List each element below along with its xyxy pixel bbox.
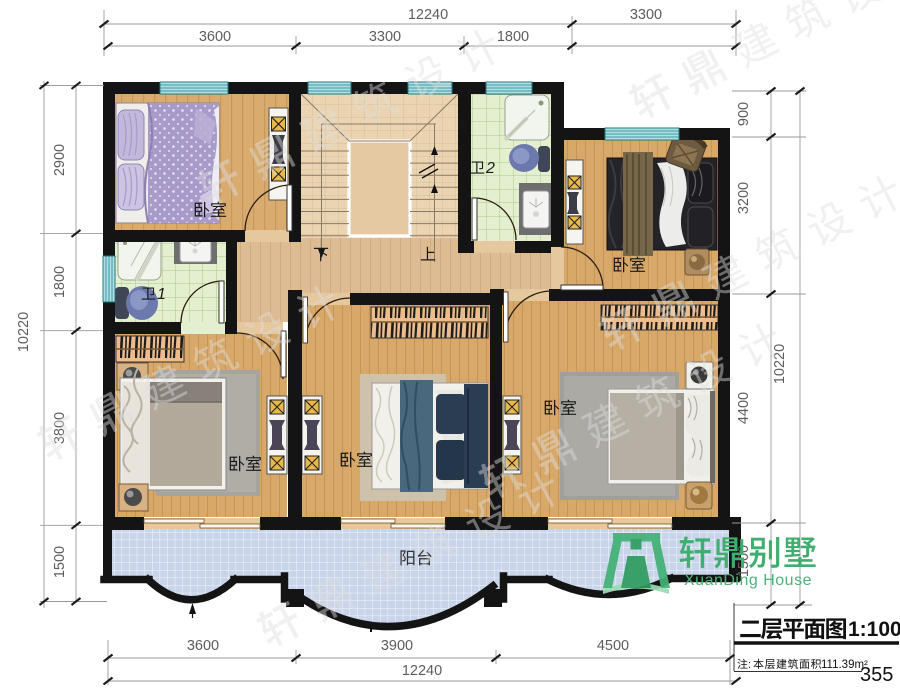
svg-text:3600: 3600 <box>187 638 219 654</box>
svg-text:1500: 1500 <box>52 546 68 578</box>
svg-text:10220: 10220 <box>16 312 32 352</box>
svg-text:1800: 1800 <box>497 29 529 45</box>
svg-text:4500: 4500 <box>597 638 629 654</box>
svg-text:2: 2 <box>485 160 495 177</box>
svg-text:3600: 3600 <box>199 29 231 45</box>
svg-text:4400: 4400 <box>736 392 752 424</box>
svg-text:1800: 1800 <box>52 266 68 298</box>
svg-text:12240: 12240 <box>408 7 448 23</box>
svg-text:2900: 2900 <box>52 144 68 176</box>
svg-text:10220: 10220 <box>772 344 788 384</box>
svg-text:3900: 3900 <box>381 638 413 654</box>
svg-text:XuanDing House: XuanDing House <box>684 572 812 589</box>
svg-text:3300: 3300 <box>630 7 662 23</box>
svg-text::: : <box>748 659 751 671</box>
svg-text:3200: 3200 <box>736 182 752 214</box>
svg-text:355: 355 <box>860 664 893 685</box>
svg-text:3300: 3300 <box>369 29 401 45</box>
svg-text:1: 1 <box>157 286 166 303</box>
svg-text:12240: 12240 <box>402 663 442 679</box>
svg-text:900: 900 <box>736 102 752 126</box>
svg-text:1:100: 1:100 <box>848 618 900 641</box>
